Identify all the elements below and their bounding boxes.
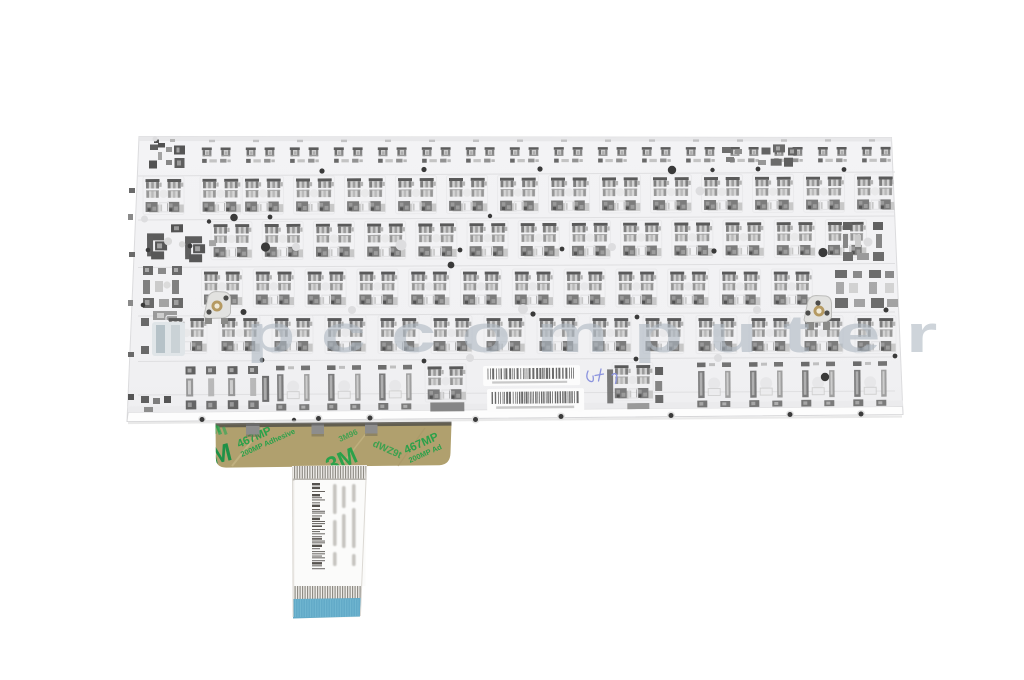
svg-text:pccomputer: pccomputer [246,304,963,364]
